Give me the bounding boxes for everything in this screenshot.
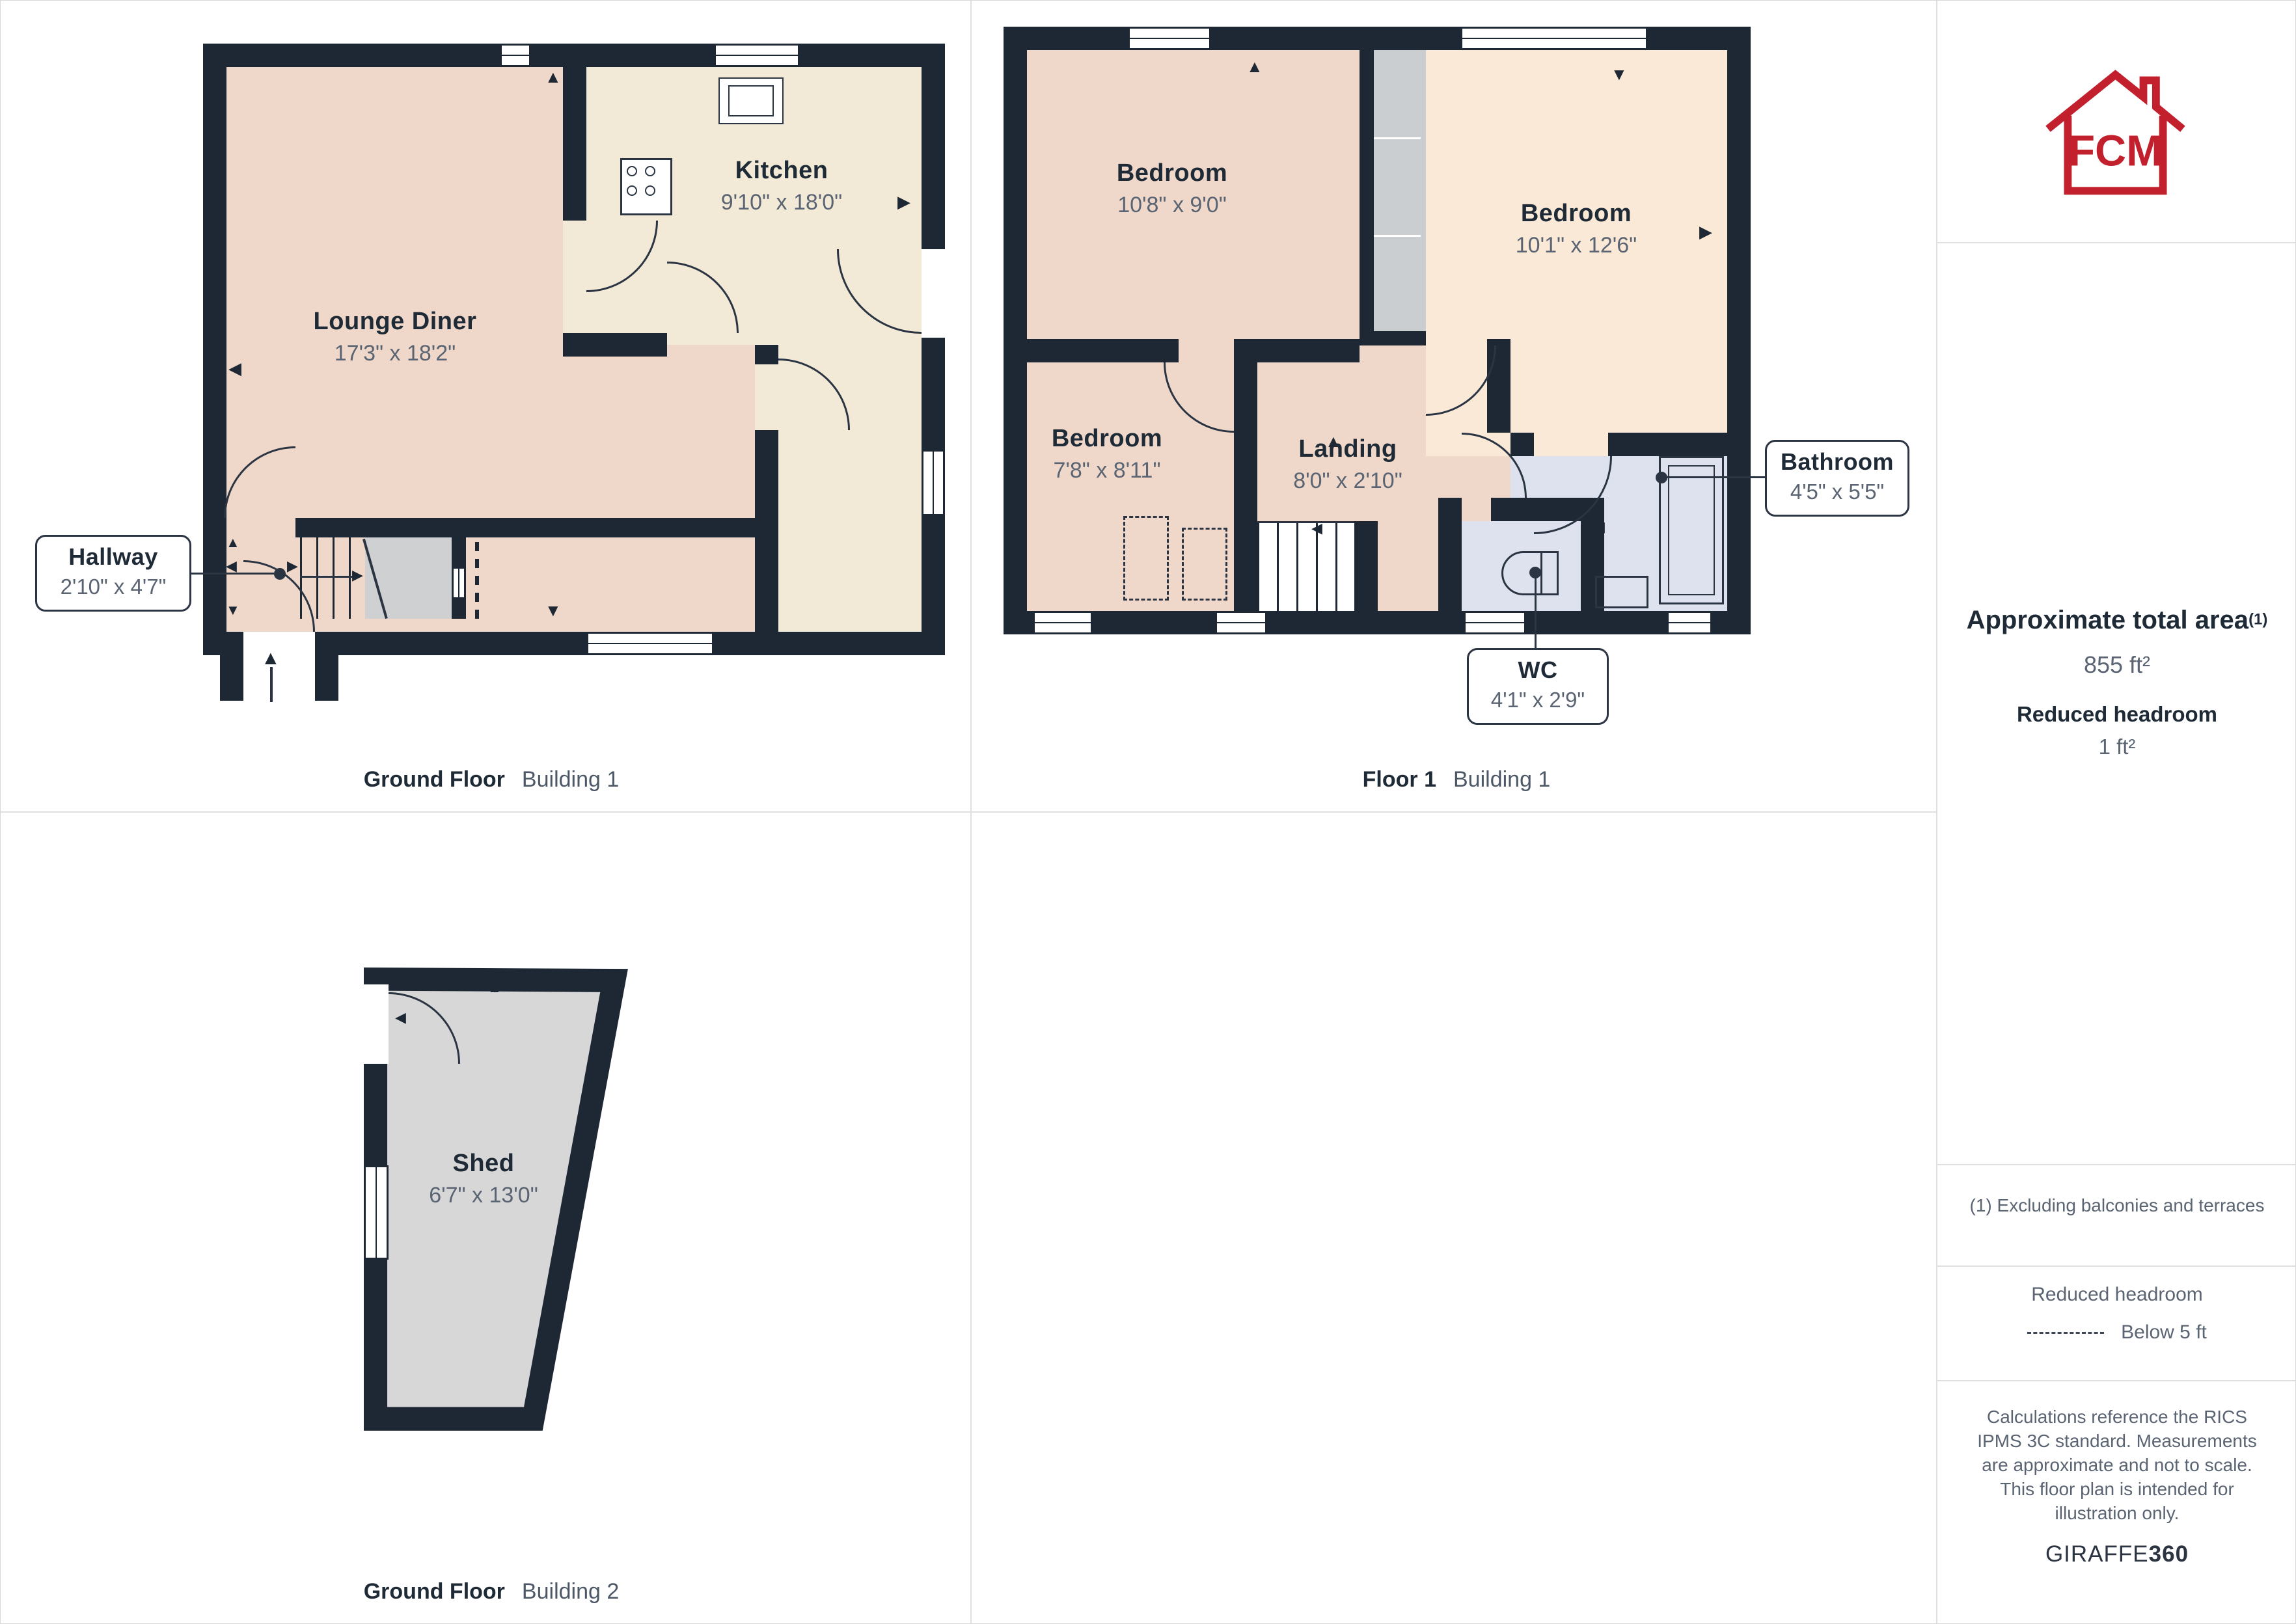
- room-label-shed: Shed 6'7" x 13'0": [429, 1150, 538, 1208]
- wall-segment: [1354, 521, 1378, 611]
- window: [1464, 611, 1526, 634]
- reduced-headroom-value: 1 ft²: [1937, 735, 2296, 759]
- door-direction-marker: ◀: [1594, 520, 1605, 534]
- window: [586, 632, 714, 655]
- bathtub-inner-icon: [1668, 465, 1715, 595]
- hob-burner-icon: [627, 166, 637, 176]
- door-direction-marker: ▼: [226, 603, 240, 617]
- sidebar-divider: [1937, 1380, 2296, 1381]
- window: [714, 44, 800, 67]
- door-direction-marker: ▲: [226, 535, 240, 550]
- divider-horizontal-mid: [1, 811, 1936, 813]
- room-dims: 10'8" x 9'0": [1117, 193, 1227, 218]
- room-label-kitchen: Kitchen 9'10" x 18'0": [721, 157, 842, 215]
- brand-normal: GIRAFFE: [2045, 1541, 2149, 1567]
- window: [1033, 611, 1093, 634]
- callout-bathroom: Bathroom 4'5" x 5'5": [1765, 440, 1909, 517]
- wall-segment: [1234, 339, 1360, 362]
- total-area-superscript: (1): [2248, 611, 2267, 629]
- wall-segment: [1360, 331, 1426, 345]
- room-name: Shed: [429, 1150, 538, 1178]
- wall-segment: [563, 67, 586, 221]
- caption-floor1-b1: Floor 1Building 1: [1363, 767, 1551, 792]
- giraffe360-brand: GIRAFFE360: [1937, 1541, 2296, 1567]
- window: [1128, 27, 1211, 50]
- room-name: Bedroom: [1516, 200, 1637, 228]
- door-direction-marker: ◀: [226, 559, 237, 573]
- room-dims: 17'3" x 18'2": [314, 341, 477, 366]
- reduced-headroom-label: Reduced headroom: [1937, 702, 2296, 727]
- fcm-logo-icon: FCM: [2045, 61, 2185, 204]
- callout-hallway: Hallway 2'10" x 4'7": [35, 535, 191, 612]
- gf1-understair: [365, 537, 452, 619]
- door-direction-marker: ◀: [228, 360, 241, 377]
- wall-segment: [452, 537, 466, 567]
- legend-title: Reduced headroom: [1937, 1284, 2296, 1306]
- door-direction-marker: ◀: [395, 1010, 406, 1025]
- window: [500, 44, 531, 67]
- hob-burner-icon: [645, 166, 655, 176]
- wall-segment: [295, 518, 755, 537]
- legend-row: Below 5 ft: [1937, 1321, 2296, 1344]
- shed-door-gap: [364, 984, 389, 1064]
- wall-segment: [1234, 362, 1257, 611]
- room-label-bedroom3: Bedroom 7'8" x 8'11": [1052, 425, 1162, 483]
- porch-wall: [220, 655, 243, 701]
- room-name: Lounge Diner: [314, 308, 477, 336]
- room-name: Bedroom: [1052, 425, 1162, 453]
- caption-floor: Ground Floor: [364, 1579, 505, 1604]
- caption-building: Building 1: [1453, 767, 1550, 792]
- room-dims: 2'10" x 4'7": [41, 575, 185, 599]
- caption-floor: Floor 1: [1363, 767, 1436, 792]
- wall-segment: [1438, 498, 1462, 611]
- hob-burner-icon: [627, 185, 637, 196]
- sidebar-divider: [1937, 1164, 2296, 1165]
- total-area-title: Approximate total area: [1967, 606, 2248, 634]
- room-name: WC: [1473, 656, 1603, 684]
- window: [922, 450, 945, 516]
- legend-item-label: Below 5 ft: [2121, 1321, 2207, 1344]
- sink-basin-icon: [728, 85, 774, 116]
- sink-icon: [1595, 576, 1648, 608]
- room-dims: 10'1" x 12'6": [1516, 233, 1637, 258]
- f1-stair-topline: [1257, 521, 1354, 523]
- porch-wall: [315, 655, 338, 701]
- door-direction-marker: ▲: [487, 981, 502, 995]
- area-footnote: (1) Excluding balconies and terraces: [1937, 1195, 2296, 1216]
- wall-segment: [1510, 433, 1534, 456]
- leader-line: [1661, 476, 1765, 478]
- room-label-landing: Landing 8'0" x 2'10": [1293, 435, 1402, 494]
- sidebar-divider: [1937, 1265, 2296, 1267]
- total-area-value: 855 ft²: [1937, 651, 2296, 679]
- brand-bold: 360: [2149, 1541, 2189, 1567]
- gf1-stair-window: [452, 567, 466, 599]
- reduced-headroom-area: [1123, 516, 1169, 601]
- hob-burner-icon: [645, 185, 655, 196]
- door-direction-marker: ▶: [287, 559, 298, 573]
- reduced-headroom-area: [1182, 528, 1227, 601]
- door-direction-marker: ▼: [1611, 66, 1628, 83]
- room-dims: 9'10" x 18'0": [721, 190, 842, 215]
- caption-building: Building 1: [522, 767, 619, 792]
- window: [1667, 611, 1712, 634]
- room-dims: 8'0" x 2'10": [1293, 468, 1402, 494]
- wall-segment: [1360, 50, 1374, 336]
- gf1-reduced-headroom-line: [475, 537, 479, 619]
- entry-arrow-icon: ▲: [261, 649, 280, 668]
- room-name: Hallway: [41, 543, 185, 571]
- wall-segment: [563, 333, 667, 357]
- wall-segment: [452, 599, 466, 619]
- door-direction-marker: ◀: [1311, 521, 1322, 535]
- closet-shelf-line: [1366, 137, 1421, 139]
- caption-ground-floor-b2: Ground FloorBuilding 2: [364, 1579, 620, 1604]
- fcm-logo-text: FCM: [2068, 128, 2162, 176]
- room-name: Bedroom: [1117, 159, 1227, 187]
- room-label-bedroom2: Bedroom 10'1" x 12'6": [1516, 200, 1637, 258]
- room-dims: 4'5" x 5'5": [1771, 480, 1904, 504]
- door-direction-marker: ▲: [1246, 58, 1263, 75]
- wall-segment: [755, 345, 778, 364]
- wall-segment: [1608, 433, 1727, 456]
- total-area-label: Approximate total area(1): [1937, 606, 2296, 635]
- room-dims: 6'7" x 13'0": [429, 1183, 538, 1208]
- disclaimer-text: Calculations reference the RICS IPMS 3C …: [1967, 1405, 2267, 1525]
- dashed-line-sample-icon: [2027, 1332, 2104, 1334]
- leader-line: [190, 573, 276, 575]
- window: [364, 1165, 389, 1260]
- room-name: Kitchen: [721, 157, 842, 185]
- leader-line: [1535, 577, 1537, 648]
- gf1-patio-door-gap: [922, 249, 945, 338]
- room-name: Landing: [1293, 435, 1402, 463]
- window: [1215, 611, 1267, 634]
- door-direction-marker: ▶: [897, 193, 910, 210]
- door-direction-marker: ▼: [545, 602, 562, 619]
- room-label-lounge: Lounge Diner 17'3" x 18'2": [314, 308, 477, 366]
- window: [1460, 27, 1648, 50]
- room-dims: 7'8" x 8'11": [1052, 458, 1162, 483]
- floorplan-page: ▶ ▲ ▲ ▼ ▶ ◀ ▲ ◀ ▶ ▼ Lounge Diner 17'3" x…: [0, 0, 2296, 1624]
- room-dims: 4'1" x 2'9": [1473, 688, 1603, 712]
- sidebar-divider: [1937, 242, 2296, 243]
- caption-floor: Ground Floor: [364, 767, 505, 792]
- gf1-stair-centerline: [300, 576, 355, 578]
- wall-segment: [755, 430, 778, 632]
- door-direction-marker: ▶: [1699, 223, 1712, 240]
- callout-wc: WC 4'1" x 2'9": [1467, 648, 1609, 725]
- room-label-bedroom1: Bedroom 10'8" x 9'0": [1117, 159, 1227, 218]
- wall-segment: [1027, 339, 1179, 362]
- caption-ground-floor-b1: Ground FloorBuilding 1: [364, 767, 620, 792]
- door-direction-marker: ▲: [545, 68, 562, 85]
- closet-shelf-line: [1366, 235, 1421, 237]
- room-name: Bathroom: [1771, 448, 1904, 476]
- caption-building: Building 2: [522, 1579, 619, 1604]
- f1-stairs: [1257, 521, 1354, 611]
- entry-arrow-stem: [270, 667, 273, 702]
- stair-direction-icon: ▶: [352, 568, 363, 582]
